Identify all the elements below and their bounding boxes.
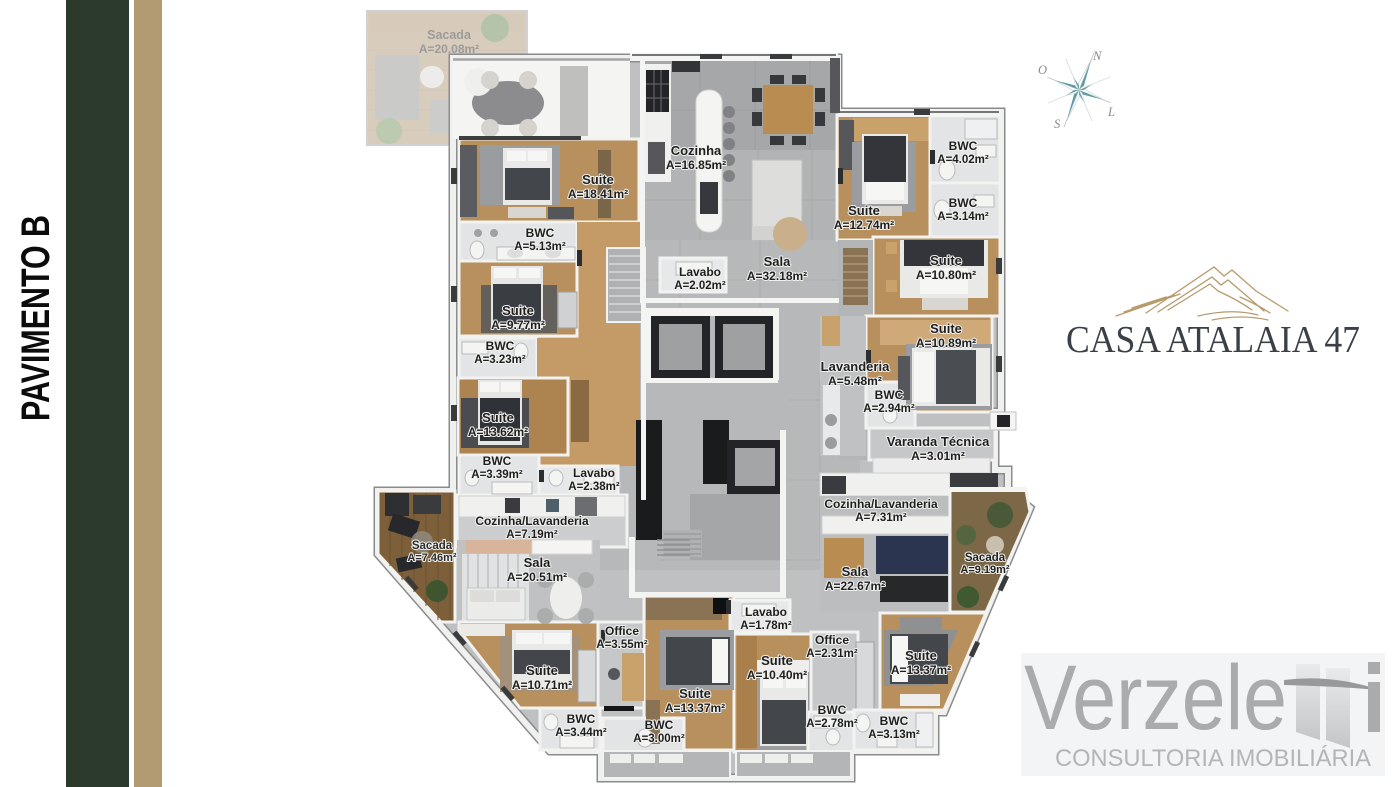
svg-text:A=2.02m²: A=2.02m² <box>674 280 726 292</box>
svg-text:Office: Office <box>605 624 639 638</box>
svg-text:A=18.41m²: A=18.41m² <box>568 187 628 201</box>
svg-text:Sacada: Sacada <box>965 552 1006 564</box>
svg-text:Suite: Suite <box>761 653 793 668</box>
svg-text:A=4.02m²: A=4.02m² <box>937 154 989 166</box>
svg-text:A=3.00m²: A=3.00m² <box>633 733 685 745</box>
svg-text:Suite: Suite <box>679 686 711 701</box>
svg-text:Office: Office <box>815 633 849 647</box>
svg-text:A=10.71m²: A=10.71m² <box>512 678 572 692</box>
svg-text:L: L <box>1107 105 1115 119</box>
svg-text:Lavanderia: Lavanderia <box>821 359 890 374</box>
svg-text:Suite: Suite <box>930 253 962 268</box>
svg-text:A=9.77m²: A=9.77m² <box>491 318 545 332</box>
svg-text:A=22.67m²: A=22.67m² <box>825 579 885 593</box>
svg-text:BWC: BWC <box>880 714 909 728</box>
svg-text:A=3.55m²: A=3.55m² <box>596 639 648 651</box>
svg-text:Sacada: Sacada <box>412 540 453 552</box>
svg-text:Cozinha/Lavanderia: Cozinha/Lavanderia <box>824 497 938 511</box>
svg-text:A=32.18m²: A=32.18m² <box>747 269 807 283</box>
svg-text:A=2.94m²: A=2.94m² <box>863 403 915 415</box>
svg-text:A=16.85m²: A=16.85m² <box>666 158 726 172</box>
svg-text:A=5.48m²: A=5.48m² <box>828 374 882 388</box>
svg-text:A=7.46m²: A=7.46m² <box>407 552 457 564</box>
svg-text:Suite: Suite <box>905 648 937 663</box>
svg-text:PAVIMENTO B: PAVIMENTO B <box>14 215 58 421</box>
svg-text:BWC: BWC <box>486 339 515 353</box>
svg-text:A=3.23m²: A=3.23m² <box>474 354 526 366</box>
svg-text:A=2.78m²: A=2.78m² <box>806 718 858 730</box>
svg-text:Sala: Sala <box>764 254 792 269</box>
svg-text:Sala: Sala <box>842 564 870 579</box>
svg-text:A=2.31m²: A=2.31m² <box>806 648 858 660</box>
svg-text:Lavabo: Lavabo <box>573 466 615 480</box>
svg-text:Suite: Suite <box>482 410 514 425</box>
svg-text:CONSULTORIA IMOBILIÁRIA: CONSULTORIA IMOBILIÁRIA <box>1055 745 1371 772</box>
svg-text:A=13.37m²: A=13.37m² <box>891 663 951 677</box>
svg-text:Suite: Suite <box>848 203 880 218</box>
svg-text:BWC: BWC <box>483 454 512 468</box>
svg-text:A=13.62m²: A=13.62m² <box>468 425 528 439</box>
svg-text:Lavabo: Lavabo <box>679 265 721 279</box>
svg-text:Suite: Suite <box>582 172 614 187</box>
svg-text:A=3.39m²: A=3.39m² <box>471 469 523 481</box>
svg-text:Cozinha/Lavanderia: Cozinha/Lavanderia <box>475 514 589 528</box>
svg-text:A=3.44m²: A=3.44m² <box>555 727 607 739</box>
svg-text:A=9.19m²: A=9.19m² <box>960 564 1010 576</box>
svg-text:A=1.78m²: A=1.78m² <box>740 620 792 632</box>
svg-text:A=20.51m²: A=20.51m² <box>507 570 567 584</box>
svg-text:A=7.31m²: A=7.31m² <box>855 512 907 524</box>
svg-text:Sala: Sala <box>524 555 552 570</box>
svg-text:O: O <box>1038 63 1047 77</box>
svg-text:A=13.37m²: A=13.37m² <box>665 701 725 715</box>
svg-text:Suite: Suite <box>526 663 558 678</box>
svg-text:BWC: BWC <box>526 226 555 240</box>
svg-text:BWC: BWC <box>875 388 904 402</box>
svg-text:Sacada: Sacada <box>427 28 472 42</box>
svg-text:Suite: Suite <box>502 303 534 318</box>
svg-text:CASA ATALAIA 47: CASA ATALAIA 47 <box>1066 319 1360 361</box>
svg-text:Lavabo: Lavabo <box>745 605 787 619</box>
svg-text:A=3.14m²: A=3.14m² <box>937 211 989 223</box>
svg-text:BWC: BWC <box>949 139 978 153</box>
svg-text:Cozinha: Cozinha <box>671 143 722 158</box>
svg-text:BWC: BWC <box>818 703 847 717</box>
svg-text:A=10.40m²: A=10.40m² <box>747 668 807 682</box>
svg-text:A=7.19m²: A=7.19m² <box>506 529 558 541</box>
svg-text:BWC: BWC <box>949 196 978 210</box>
svg-text:A=2.38m²: A=2.38m² <box>568 481 620 493</box>
svg-text:Varanda Técnica: Varanda Técnica <box>887 434 990 449</box>
svg-text:A=3.01m²: A=3.01m² <box>911 449 965 463</box>
svg-text:N: N <box>1092 49 1102 63</box>
svg-text:A=5.13m²: A=5.13m² <box>514 241 566 253</box>
svg-text:A=10.80m²: A=10.80m² <box>916 268 976 282</box>
svg-text:A=3.13m²: A=3.13m² <box>868 729 920 741</box>
svg-text:Suite: Suite <box>930 321 962 336</box>
svg-text:BWC: BWC <box>645 718 674 732</box>
svg-text:Verzele: Verzele <box>1024 647 1287 749</box>
svg-text:A=10.89m²: A=10.89m² <box>916 336 976 350</box>
svg-text:S: S <box>1054 117 1061 131</box>
svg-text:A=12.74m²: A=12.74m² <box>834 218 894 232</box>
svg-text:BWC: BWC <box>567 712 596 726</box>
